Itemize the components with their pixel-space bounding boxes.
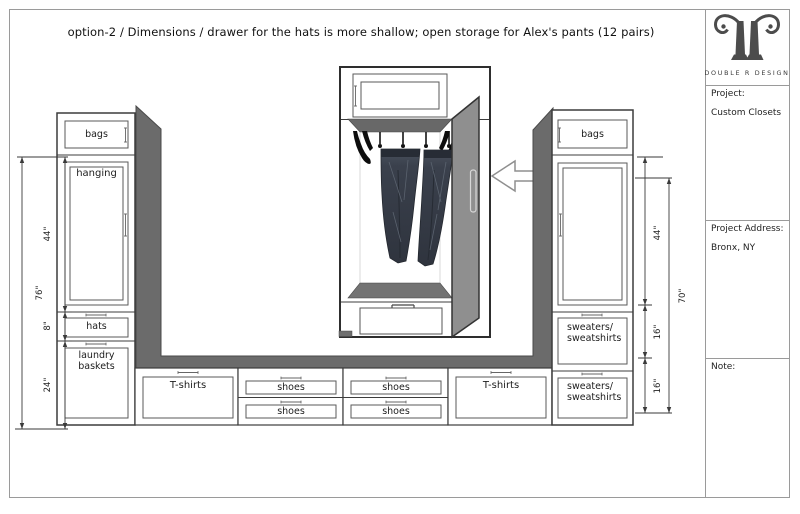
left-bags-label: bags — [85, 129, 108, 140]
dim-right-hanging: 44" — [653, 226, 663, 241]
address-label: Project Address: — [711, 224, 784, 234]
tshirts-left-label: T-shirts — [170, 380, 206, 392]
project-label: Project: — [711, 89, 745, 99]
sweaters-label-1: sweaters/ sweatshirts — [567, 322, 629, 345]
shoes-label-3: shoes — [382, 382, 410, 393]
dim-left-laundry: 24" — [43, 378, 53, 393]
center-wardrobe — [339, 67, 490, 337]
sweaters-label-2: sweaters/ sweatshirts — [567, 381, 629, 404]
dim-left-total: 76" — [35, 286, 45, 301]
tshirts-right-label: T-shirts — [483, 380, 519, 392]
shoes-label-2: shoes — [277, 406, 305, 417]
dim-right-drawer2: 16" — [653, 379, 663, 394]
note-label: Note: — [711, 362, 735, 372]
dim-right-drawer1: 16" — [653, 325, 663, 340]
drawing-title: option-2 / Dimensions / drawer for the h… — [68, 25, 655, 39]
project-value: Custom Closets — [711, 108, 781, 118]
address-value: Bronx, NY — [711, 243, 755, 253]
brand-logo-icon — [716, 16, 779, 60]
shoes-label-1: shoes — [277, 382, 305, 393]
dim-left-hats: 8" — [43, 321, 53, 330]
left-hats-label: hats — [86, 321, 107, 332]
brand-name: DOUBLE R DESIGN — [704, 69, 789, 77]
dim-right-total: 70" — [678, 289, 688, 304]
base-drawer-row — [135, 368, 552, 425]
dim-left-hanging: 44" — [43, 227, 53, 242]
left-hanging-label: hanging — [76, 168, 117, 180]
open-door — [452, 97, 479, 337]
right-bags-label: bags — [581, 129, 604, 140]
drawing-sheet: option-2 / Dimensions / drawer for the h… — [0, 0, 800, 514]
shoes-label-4: shoes — [382, 406, 410, 417]
closet-elevation-drawing — [0, 0, 800, 514]
left-tower — [57, 113, 135, 425]
right-tower — [552, 110, 633, 425]
left-laundry-label: laundry baskets — [69, 350, 124, 373]
